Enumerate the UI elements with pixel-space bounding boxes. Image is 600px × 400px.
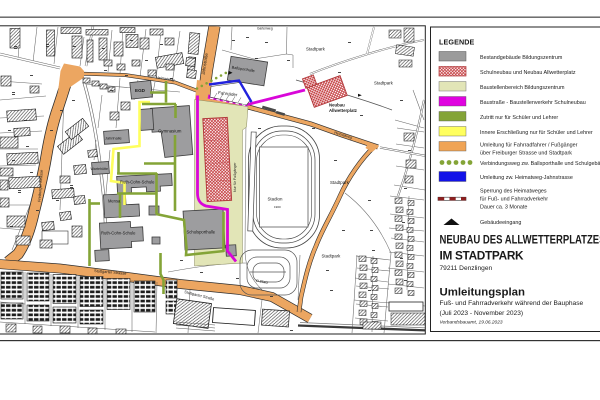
svg-text:Sperrung des Heimatweges: Sperrung des Heimatweges: [480, 189, 547, 195]
svg-text:Umleitung für Fahrradfahrer /: Umleitung für Fahrradfahrer / Fußgänger: [480, 143, 578, 149]
svg-text:Dauer ca. 3 Monate: Dauer ca. 3 Monate: [480, 205, 527, 211]
svg-text:Innere Erschließung nur für Sc: Innere Erschließung nur für Schüler und …: [480, 130, 593, 136]
svg-text:Ruth-Cohn-Schule: Ruth-Cohn-Schule: [101, 231, 136, 236]
svg-text:Gebäudeeingang: Gebäudeeingang: [480, 220, 521, 226]
svg-text:Stadion: Stadion: [268, 197, 283, 202]
svg-text:(Juli 2023 - November 2023): (Juli 2023 - November 2023): [440, 310, 524, 317]
svg-text:über Freiburger Strasse und St: über Freiburger Strasse und Stadtpark: [480, 151, 572, 157]
svg-text:IM STADTPARK: IM STADTPARK: [440, 249, 525, 263]
svg-text:Neubau: Neubau: [329, 103, 345, 108]
svg-text:NEUBAU DES ALLWETTERPLATZES: NEUBAU DES ALLWETTERPLATZES: [440, 233, 600, 247]
svg-text:Wartehütte: Wartehütte: [91, 167, 108, 171]
svg-text:Fuß- und Fahrradverkehr währen: Fuß- und Fahrradverkehr während der Baup…: [440, 300, 584, 307]
svg-text:Zutritt nur für Schüler und Le: Zutritt nur für Schüler und Lehrer: [480, 115, 558, 121]
svg-text:Baustellenbereich Bildungszent: Baustellenbereich Bildungszentrum: [480, 85, 565, 91]
svg-text:Jahnhalle: Jahnhalle: [105, 136, 122, 141]
svg-text:Stadtpark: Stadtpark: [330, 180, 350, 185]
svg-text:Schulsporthalle: Schulsporthalle: [187, 230, 216, 235]
svg-text:79211 Denzlingen: 79211 Denzlingen: [440, 265, 493, 272]
svg-text:Schulneubau und Neubau Allwett: Schulneubau und Neubau Allwetterplatz: [480, 70, 576, 76]
svg-text:1900: 1900: [274, 205, 281, 209]
svg-text:Stadtpark: Stadtpark: [322, 254, 342, 259]
svg-text:Stadtpark: Stadtpark: [306, 47, 326, 52]
svg-text:Umleitungsplan: Umleitungsplan: [440, 287, 525, 299]
svg-text:LEGENDE: LEGENDE: [439, 38, 475, 47]
svg-text:Allwetterplatz: Allwetterplatz: [329, 108, 357, 113]
svg-text:Baustraße - Baustellenverkehr: Baustraße - Baustellenverkehr Schulneuba…: [480, 100, 586, 106]
svg-text:Nur für Fußgänger: Nur für Fußgänger: [233, 162, 237, 192]
svg-text:Bestandgebäude Bildungszentrum: Bestandgebäude Bildungszentrum: [480, 55, 563, 61]
svg-text:Gartenweg: Gartenweg: [257, 27, 273, 31]
svg-text:Mensa: Mensa: [108, 199, 121, 204]
svg-text:Gymnasium: Gymnasium: [158, 129, 182, 134]
svg-text:Umleitung zw. Heimatweg-Jahnst: Umleitung zw. Heimatweg-Jahnstrasse: [480, 175, 573, 181]
svg-text:EGD: EGD: [135, 88, 146, 93]
svg-text:Ruth-Cohn-Schule: Ruth-Cohn-Schule: [120, 180, 155, 185]
svg-text:Stadtpark: Stadtpark: [374, 81, 394, 86]
svg-text:Verbandsbauamt, 19.06.2023: Verbandsbauamt, 19.06.2023: [440, 320, 503, 326]
svg-text:Verbindungsweg zw. Ballsportha: Verbindungsweg zw. Ballsporthalle und Sc…: [480, 161, 600, 167]
svg-text:für Fuß- und Fahrradverkehr: für Fuß- und Fahrradverkehr: [480, 197, 548, 203]
